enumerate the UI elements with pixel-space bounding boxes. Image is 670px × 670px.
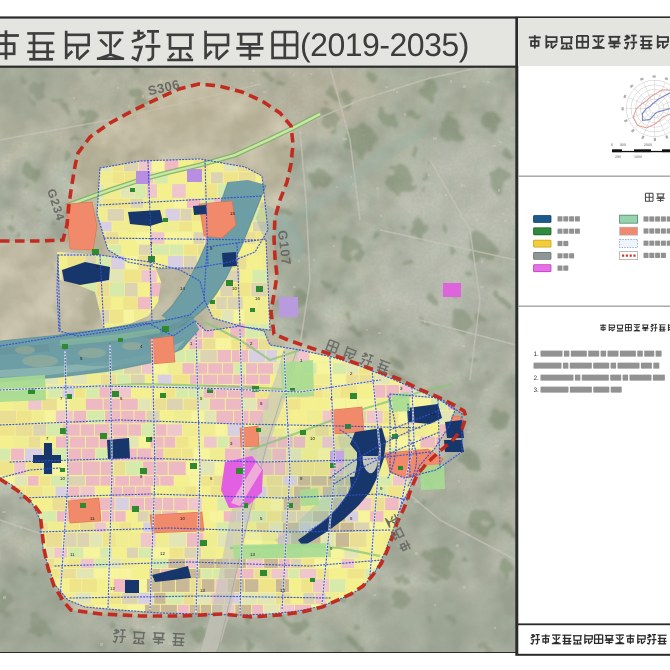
svg-text:10: 10 xyxy=(180,516,185,521)
svg-text:11: 11 xyxy=(90,516,95,521)
svg-text:12: 12 xyxy=(160,551,165,556)
svg-text:13: 13 xyxy=(200,588,205,593)
svg-text:13: 13 xyxy=(250,552,255,557)
svg-text:10: 10 xyxy=(60,476,65,481)
svg-text:15: 15 xyxy=(230,211,235,216)
svg-text:14: 14 xyxy=(280,588,285,593)
svg-text:(2019-2035): (2019-2035) xyxy=(300,27,469,63)
svg-text:250: 250 xyxy=(615,155,621,159)
svg-text:16: 16 xyxy=(255,296,260,301)
svg-text:11: 11 xyxy=(70,552,75,557)
svg-text:3.: 3. xyxy=(534,387,540,394)
svg-text:12: 12 xyxy=(110,586,115,591)
svg-text:14: 14 xyxy=(180,286,185,291)
svg-text:13: 13 xyxy=(430,411,435,416)
svg-text:2000: 2000 xyxy=(644,143,652,147)
svg-text:1000: 1000 xyxy=(634,155,642,159)
svg-text:2.: 2. xyxy=(534,375,540,382)
svg-text:10: 10 xyxy=(310,436,315,441)
svg-text:10: 10 xyxy=(232,286,237,291)
svg-text:1.: 1. xyxy=(534,351,540,358)
svg-text:500: 500 xyxy=(620,143,626,147)
svg-text:0: 0 xyxy=(611,143,613,147)
